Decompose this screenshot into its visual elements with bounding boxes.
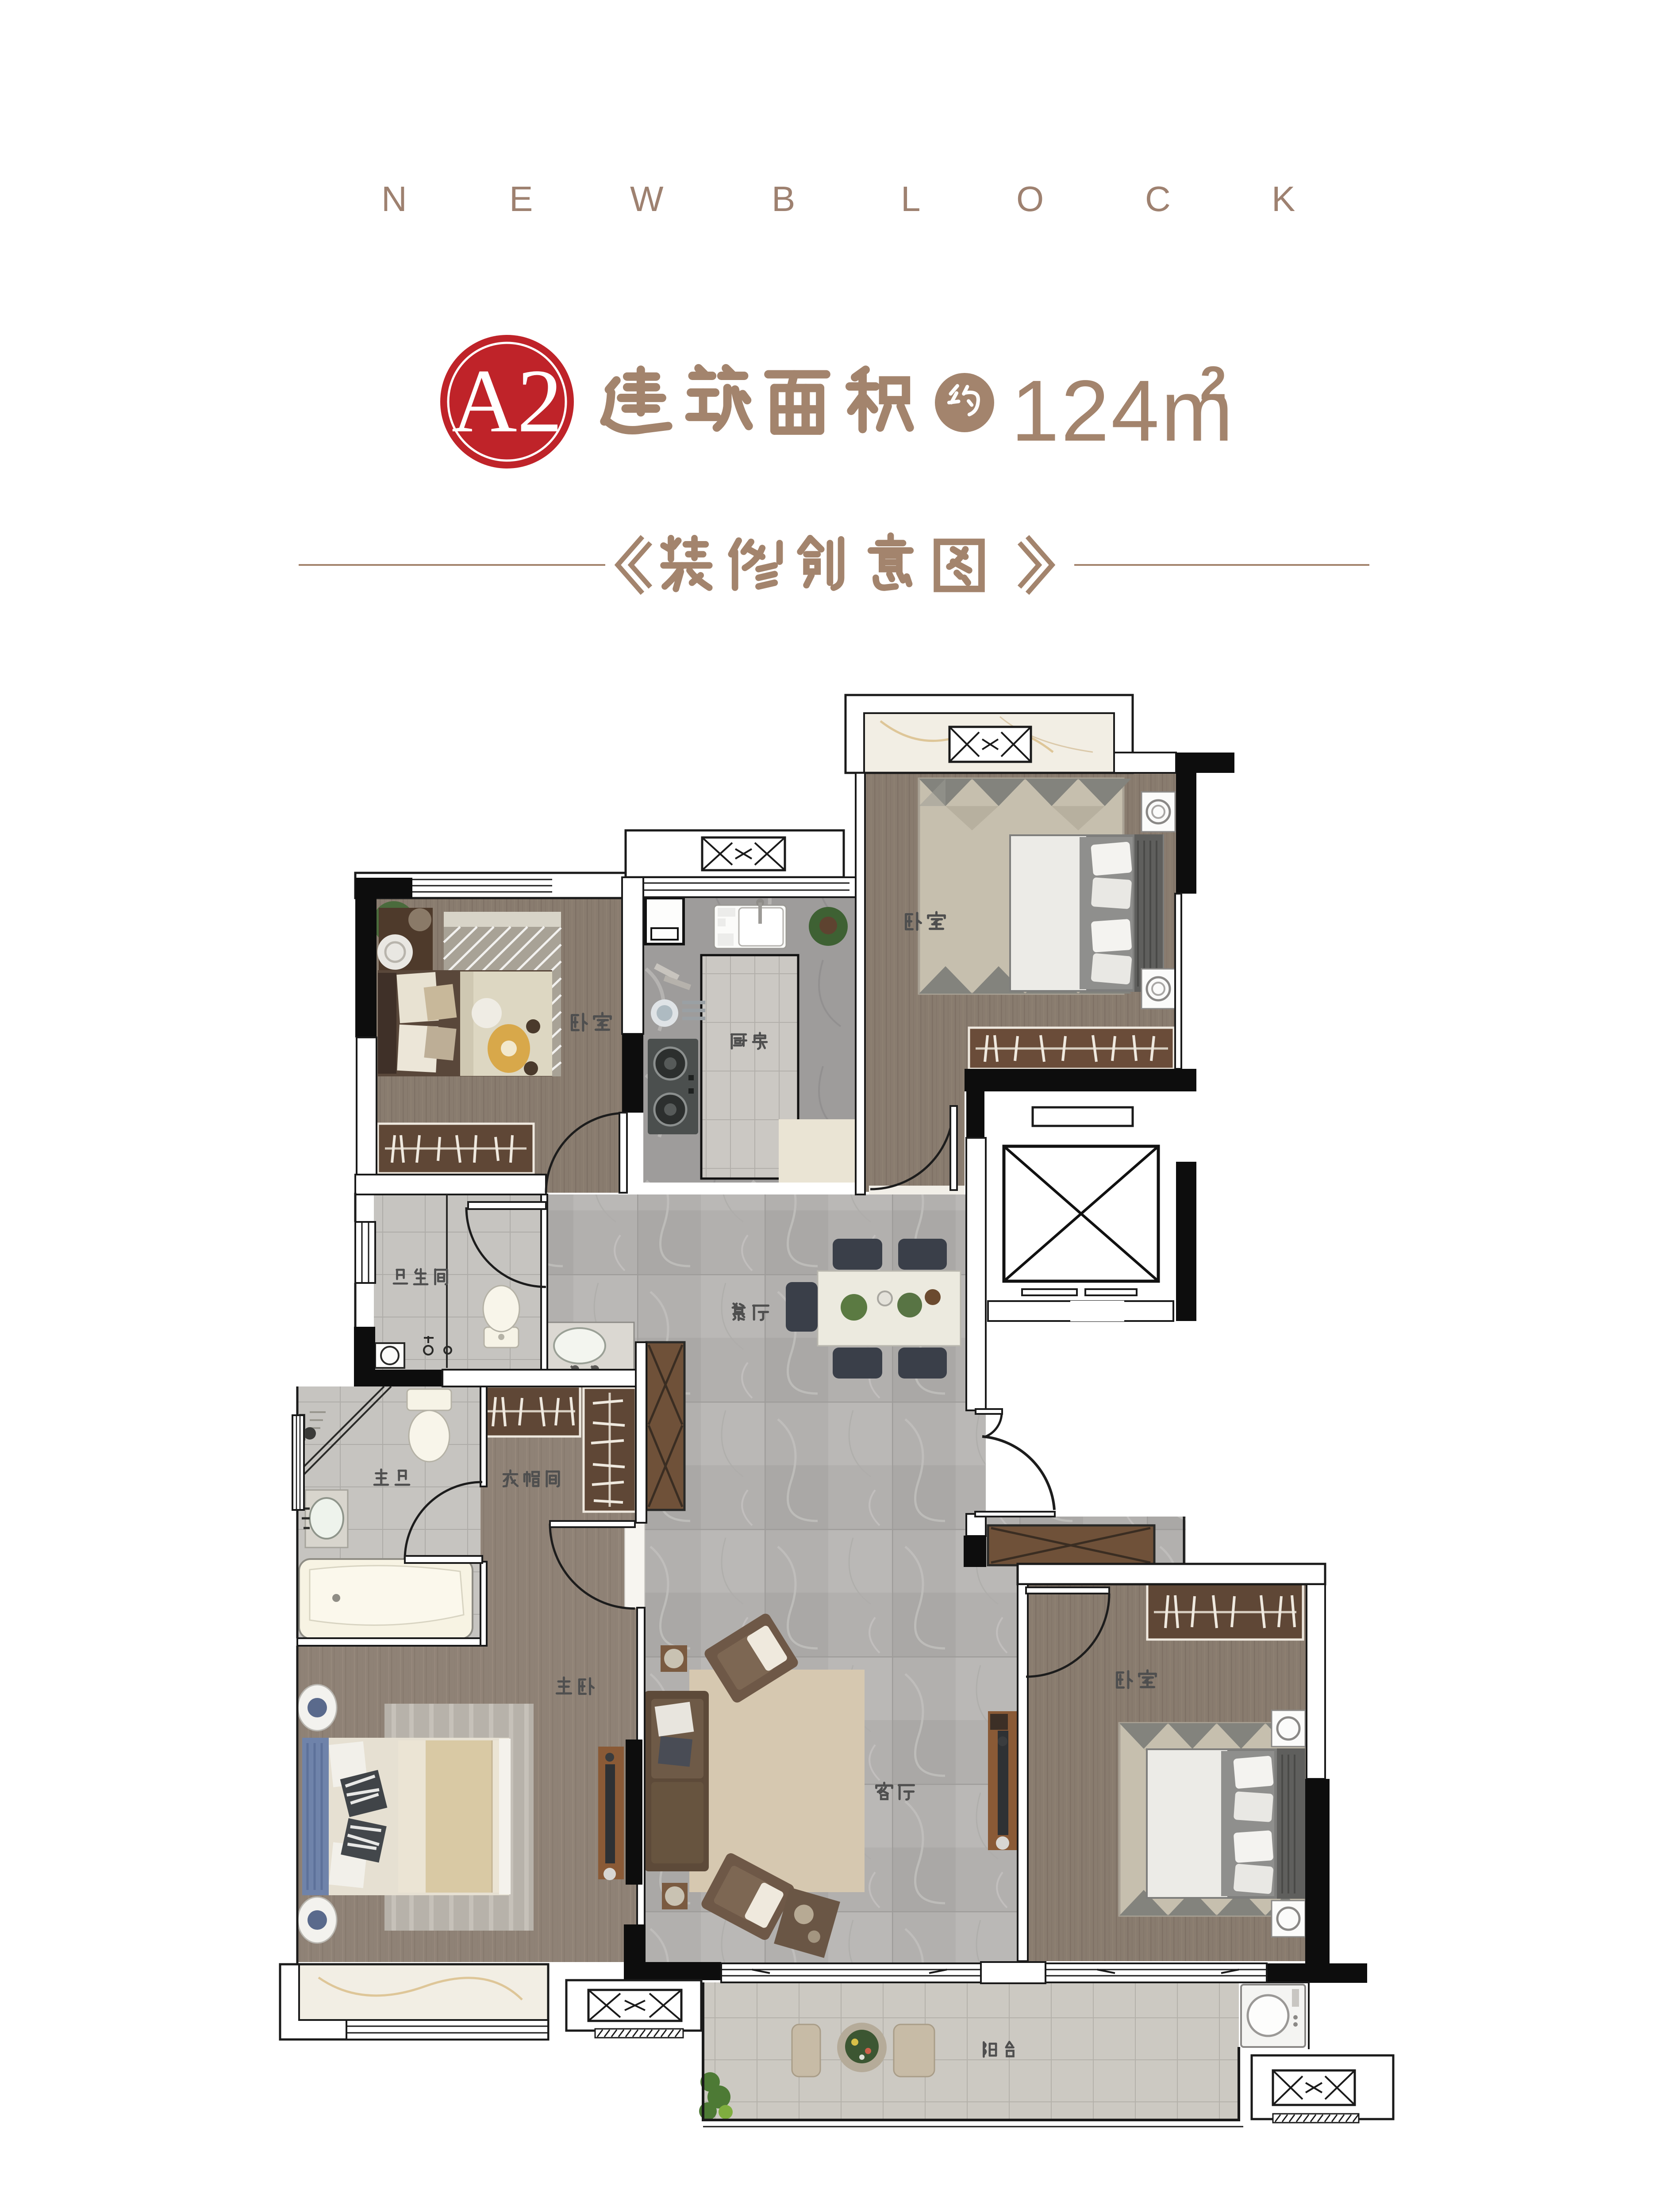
svg-text:C: C xyxy=(1145,179,1171,219)
svg-text:B: B xyxy=(772,179,795,219)
svg-text:A2: A2 xyxy=(452,351,563,451)
svg-text:2: 2 xyxy=(1200,356,1226,410)
svg-text:K: K xyxy=(1272,179,1295,219)
svg-text:W: W xyxy=(630,179,664,219)
svg-text:E: E xyxy=(509,179,533,219)
svg-text:O: O xyxy=(1016,179,1044,219)
svg-text:N: N xyxy=(381,179,407,219)
svg-text:L: L xyxy=(901,179,921,219)
